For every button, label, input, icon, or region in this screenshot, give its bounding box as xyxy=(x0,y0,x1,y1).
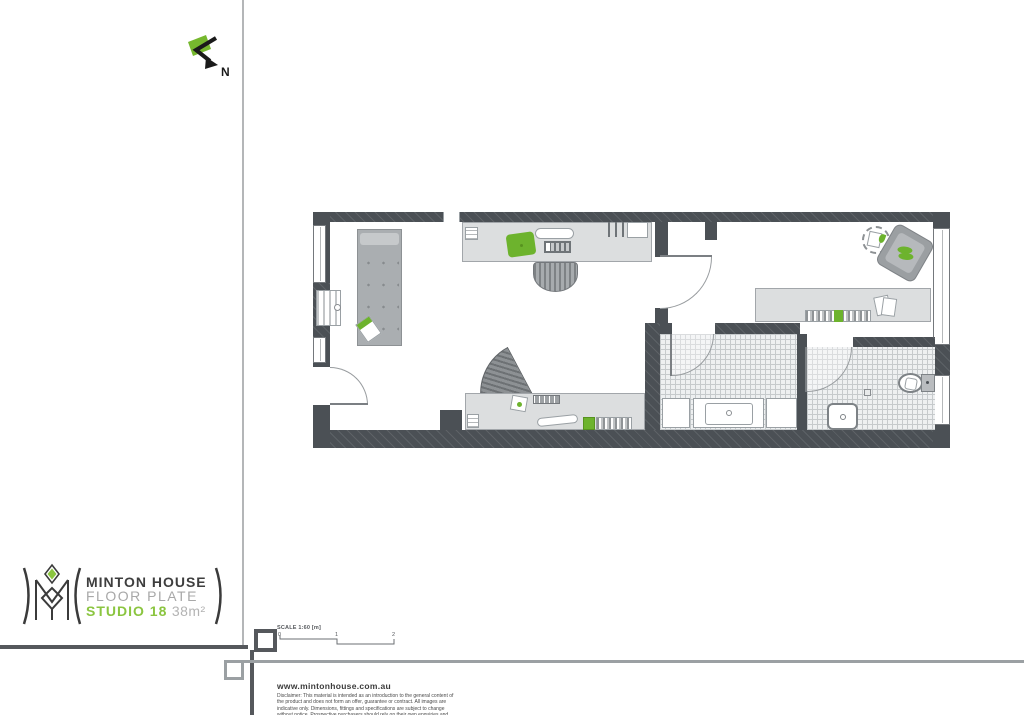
wall xyxy=(933,425,950,448)
washer xyxy=(766,398,797,428)
stool xyxy=(533,262,578,292)
wall xyxy=(326,225,330,283)
bathroom-door xyxy=(805,347,807,392)
wall xyxy=(933,345,950,375)
wall xyxy=(315,212,948,222)
console-green-book xyxy=(834,310,843,322)
toilet-seat xyxy=(904,377,918,391)
logo-unit: STUDIO 18 xyxy=(86,603,167,619)
disclaimer-text: Disclaimer: This material is intended as… xyxy=(277,693,455,715)
logo-title: MINTON HOUSE xyxy=(86,575,207,589)
internal-door-swing xyxy=(660,257,712,309)
basin-drain xyxy=(840,414,846,420)
logo-area: 38m² xyxy=(172,603,206,619)
cooktop-burners xyxy=(551,243,569,251)
wall xyxy=(933,212,950,228)
toilet-cistern-button xyxy=(926,381,929,384)
fridge-vents xyxy=(608,222,627,237)
wall-pier xyxy=(705,222,717,240)
scale-label: SCALE 1:60 [m] xyxy=(277,625,407,631)
internal-door xyxy=(660,255,712,257)
wall xyxy=(715,323,800,334)
logo-subtitle: FLOOR PLATE xyxy=(86,589,207,603)
radiator-knob xyxy=(334,304,341,311)
wall xyxy=(660,323,672,334)
keyboard xyxy=(533,395,560,404)
wall xyxy=(313,405,330,448)
scale-ruler xyxy=(277,634,399,650)
wall xyxy=(326,337,330,363)
window xyxy=(933,228,950,345)
floor-drain xyxy=(864,389,871,396)
scale-bar: SCALE 1:60 [m] 0 1 2 xyxy=(277,625,407,649)
console-paper xyxy=(881,297,897,317)
floor-plan xyxy=(313,210,950,450)
wall-pier xyxy=(440,410,462,430)
kitchen-towel xyxy=(465,227,478,240)
cabinet xyxy=(662,398,690,428)
footer: www.mintonhouse.com.au Disclaimer: This … xyxy=(277,681,477,715)
website-link[interactable]: www.mintonhouse.com.au xyxy=(277,681,477,691)
notepad-dot xyxy=(517,402,522,407)
north-arrow-icon: N N xyxy=(180,28,240,83)
kitchen-sink xyxy=(535,228,574,239)
cutting-board-hole xyxy=(520,244,523,247)
wall xyxy=(655,222,668,257)
light-corner-square xyxy=(224,660,244,680)
window xyxy=(933,375,950,425)
light-horizontal-rule xyxy=(226,660,1024,663)
entry-door xyxy=(330,403,368,405)
laundry-tub-drain xyxy=(726,410,732,416)
wall-joint xyxy=(443,212,460,222)
page: N N xyxy=(0,0,1024,715)
wall xyxy=(853,337,935,347)
window xyxy=(313,337,326,363)
cooktop-switch xyxy=(546,243,550,251)
wall xyxy=(313,363,330,367)
dark-horizontal-rule xyxy=(0,645,248,649)
wall xyxy=(655,308,668,324)
wall xyxy=(313,212,330,225)
wall xyxy=(645,323,660,430)
desk-books xyxy=(596,417,632,430)
desk-side-item xyxy=(467,414,479,428)
logo: MINTON HOUSE FLOOR PLATE STUDIO 18 38m² xyxy=(16,562,236,632)
window xyxy=(313,225,326,283)
entry-door-swing xyxy=(330,367,368,405)
bed-pillow xyxy=(360,233,399,245)
dark-corner-square xyxy=(254,629,277,652)
left-panel-divider-line xyxy=(242,0,244,648)
kitchen-appliance xyxy=(627,222,648,238)
wall xyxy=(315,430,948,448)
green-folder xyxy=(583,417,595,430)
laundry-door xyxy=(670,334,672,376)
north-label-glyph: N xyxy=(221,65,230,79)
